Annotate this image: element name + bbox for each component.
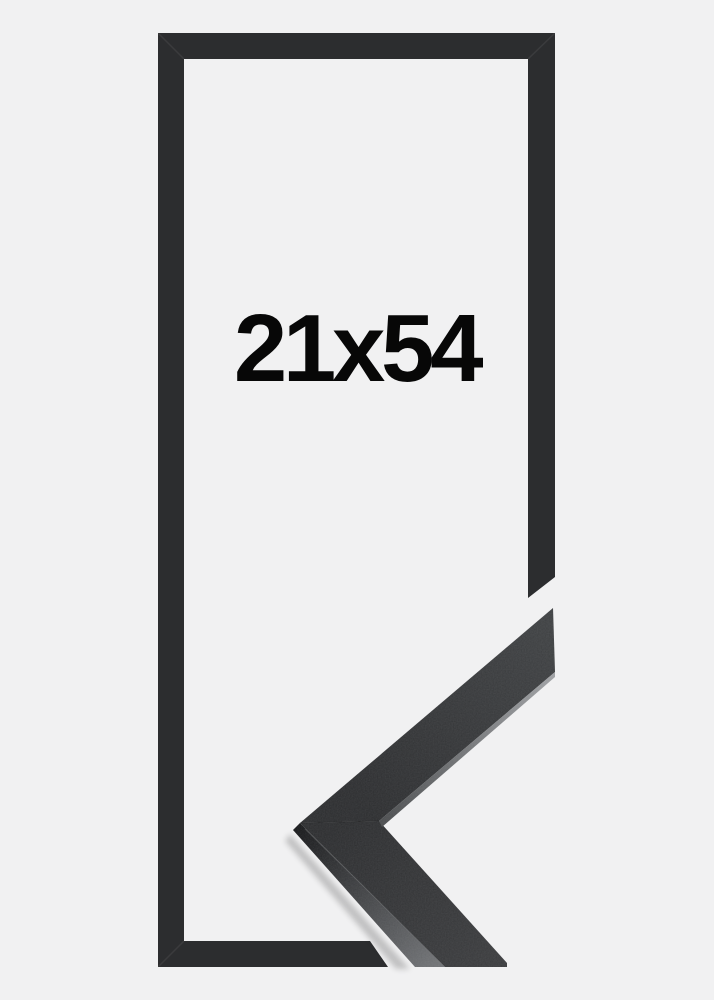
frame-outline-bottom-bar — [158, 941, 388, 967]
frame-outline-left-bar — [158, 33, 184, 967]
size-label: 21x54 — [158, 301, 555, 397]
frame-outline-top-bar — [158, 33, 555, 59]
frame-illustration — [0, 0, 714, 1000]
product-image: 21x54 — [0, 0, 714, 1000]
